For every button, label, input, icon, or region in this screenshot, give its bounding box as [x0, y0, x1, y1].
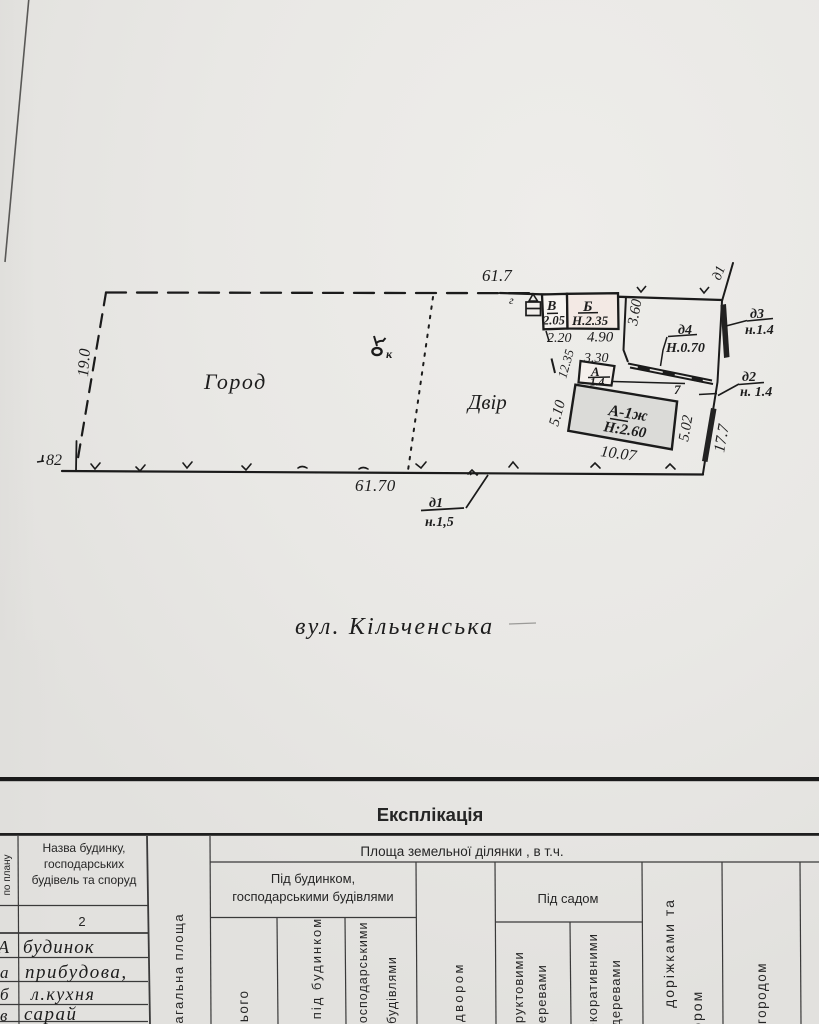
svg-text:7: 7 — [674, 382, 681, 397]
svg-text:Н.2.35: Н.2.35 — [571, 313, 609, 328]
svg-text:деревами: деревами — [534, 964, 549, 1024]
svg-text:г: г — [509, 293, 514, 307]
svg-text:л.кухня: л.кухня — [30, 984, 95, 1004]
svg-text:н.1,5: н.1,5 — [425, 515, 454, 530]
svg-text:н.1.4: н.1.4 — [745, 323, 774, 338]
svg-text:господарських: господарських — [44, 857, 124, 871]
svg-text:б: б — [0, 985, 9, 1004]
svg-text:усього: усього — [236, 989, 251, 1024]
svg-text:господарськими будівлями: господарськими будівлями — [232, 889, 393, 904]
svg-text:прибудова,: прибудова, — [25, 962, 128, 983]
svg-text:під будинком: під будинком — [309, 917, 324, 1019]
svg-text:городом: городом — [754, 962, 769, 1024]
svg-text:Площа земельної ділянки , в т.: Площа земельної ділянки , в т.ч. — [360, 844, 563, 859]
svg-text:господарськими: господарськими — [356, 922, 370, 1024]
svg-text:доріжками та: доріжками та — [661, 898, 677, 1008]
svg-text:Назва будинку,: Назва будинку, — [42, 841, 125, 855]
svg-text:Експлікація: Експлікація — [377, 804, 484, 825]
svg-text:будівель та споруд: будівель та споруд — [32, 873, 137, 887]
svg-text:Двір: Двір — [466, 390, 507, 414]
svg-text:будинок: будинок — [23, 937, 95, 958]
svg-text:19.0: 19.0 — [75, 348, 94, 377]
svg-text:А: А — [0, 937, 10, 957]
svg-text:В: В — [546, 299, 556, 314]
svg-text:Город: Город — [203, 369, 267, 394]
svg-text:2: 2 — [78, 914, 85, 929]
svg-text:Під будинком,: Під будинком, — [271, 871, 355, 886]
svg-text:загальна площа: загальна площа — [171, 913, 186, 1024]
svg-text:будівлями: будівлями — [385, 956, 399, 1024]
svg-text:по плану: по плану — [2, 854, 13, 895]
svg-text:2.20: 2.20 — [547, 331, 572, 346]
svg-text:Під садом: Під садом — [538, 891, 599, 906]
svg-text:Н.0.70: Н.0.70 — [665, 341, 705, 356]
svg-text:4.90: 4.90 — [587, 330, 614, 346]
svg-text:61.7: 61.7 — [482, 266, 513, 285]
svg-text:сарай: сарай — [24, 1004, 77, 1024]
svg-text:декоративними: декоративними — [585, 933, 600, 1024]
svg-text:двором: двором — [451, 962, 466, 1022]
svg-text:вул. Кільченська: вул. Кільченська — [295, 614, 494, 640]
svg-text:а: а — [0, 963, 9, 982]
svg-text:2.05: 2.05 — [542, 314, 565, 328]
svg-text:61.70: 61.70 — [355, 476, 396, 495]
svg-text:82: 82 — [46, 452, 62, 469]
svg-text:н. 1.4: н. 1.4 — [740, 385, 772, 400]
svg-text:фруктовими: фруктовими — [511, 951, 526, 1024]
svg-text:двором: двором — [689, 990, 705, 1024]
svg-text:к: к — [386, 347, 393, 361]
svg-text:деревами: деревами — [608, 959, 623, 1024]
